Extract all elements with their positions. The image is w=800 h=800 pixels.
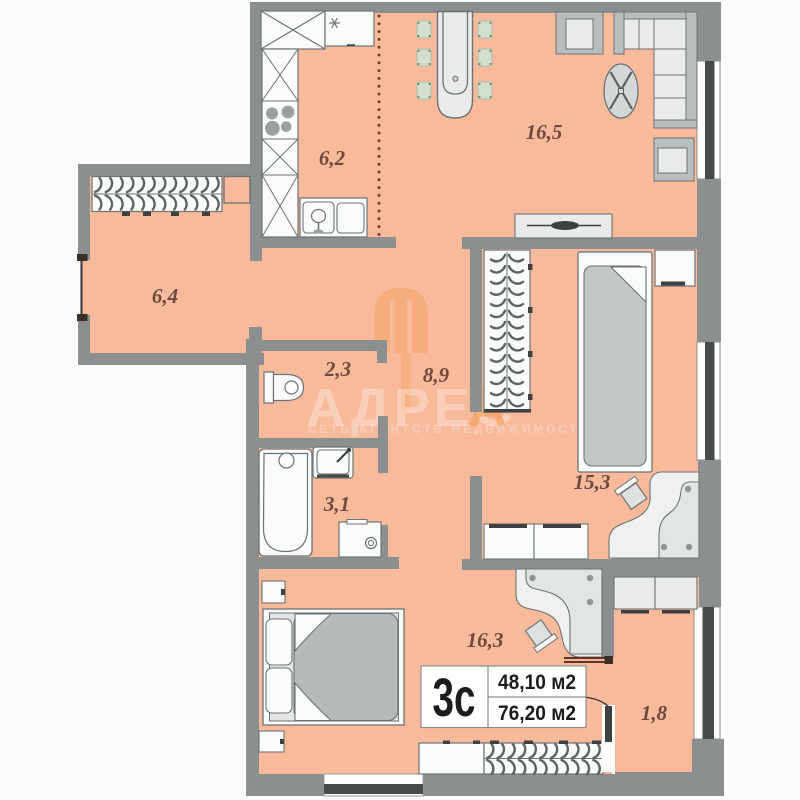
svg-text:16,5: 16,5	[526, 120, 563, 144]
svg-text:6,4: 6,4	[152, 284, 178, 308]
svg-text:6,2: 6,2	[319, 146, 346, 170]
svg-text:2,3: 2,3	[324, 357, 351, 381]
svg-text:3с: 3с	[433, 668, 476, 728]
svg-text:8,9: 8,9	[423, 363, 450, 387]
svg-text:СЕТЬ АГЕНТСТВ НЕДВИЖИМОСТИ: СЕТЬ АГЕНТСТВ НЕДВИЖИМОСТИ	[308, 424, 591, 436]
svg-text:15,3: 15,3	[574, 470, 611, 494]
svg-text:16,3: 16,3	[467, 628, 504, 652]
svg-text:3,1: 3,1	[323, 492, 350, 516]
svg-text:76,20 м2: 76,20 м2	[498, 702, 576, 725]
svg-text:1,8: 1,8	[641, 701, 668, 725]
svg-text:48,10 м2: 48,10 м2	[498, 671, 576, 694]
